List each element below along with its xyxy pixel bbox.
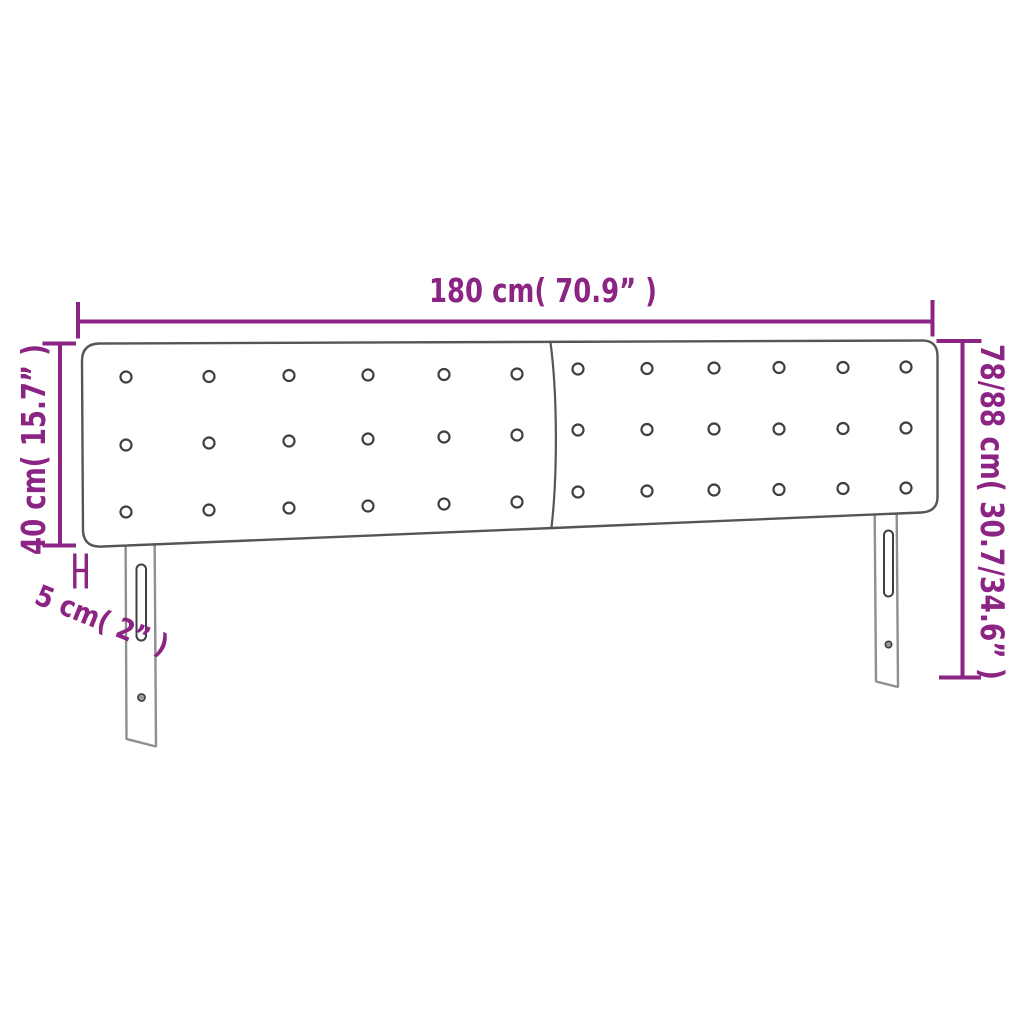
tufting-button <box>901 362 912 373</box>
left-leg-screw-hole <box>138 694 145 701</box>
tufting-button <box>642 363 653 374</box>
tufting-button <box>512 369 523 380</box>
tufting-button <box>709 485 720 496</box>
tufting-button <box>642 486 653 497</box>
tufting-button <box>439 499 450 510</box>
tufting-button <box>204 438 215 449</box>
tufting-button <box>838 483 849 494</box>
tufting-button <box>121 440 132 451</box>
tufting-button <box>204 371 215 382</box>
tufting-button <box>573 425 584 436</box>
tufting-button <box>121 372 132 383</box>
tufting-button <box>512 430 523 441</box>
dimension-diagram: 180 cm( 70.9” ) 40 cm( 15.7” ) 78/88 cm(… <box>0 0 1024 1024</box>
panel-height-dimension-label: 40 cm( 15.7” ) <box>14 344 53 555</box>
tufting-button <box>901 483 912 494</box>
tufting-button <box>512 497 523 508</box>
panel-height-dimension: 40 cm( 15.7” ) <box>14 344 76 556</box>
leg-details <box>137 531 894 702</box>
tufting-button <box>284 436 295 447</box>
tufting-button <box>363 434 374 445</box>
tufting-button <box>838 423 849 434</box>
tufting-button <box>284 503 295 514</box>
tufting-button <box>284 370 295 381</box>
right-leg-screw-hole <box>885 641 891 647</box>
total-height-dimension-label: 78/88 cm( 30.7/34.6” ) <box>973 344 1011 680</box>
tufting-button <box>439 369 450 380</box>
tufting-button <box>774 484 785 495</box>
width-dimension: 180 cm( 70.9” ) <box>78 271 933 339</box>
tufting-button <box>363 501 374 512</box>
tufting-button <box>838 362 849 373</box>
tufting-button <box>642 424 653 435</box>
tufting-button <box>709 424 720 435</box>
tufting-button <box>901 423 912 434</box>
headboard-diagram-canvas: 180 cm( 70.9” ) 40 cm( 15.7” ) 78/88 cm(… <box>0 0 1024 1024</box>
width-dimension-label: 180 cm( 70.9” ) <box>429 271 657 310</box>
total-height-dimension: 78/88 cm( 30.7/34.6” ) <box>937 341 1012 680</box>
tufting-button <box>573 364 584 375</box>
tufting-button <box>121 507 132 518</box>
tufting-button <box>774 424 785 435</box>
tufting-button <box>439 432 450 443</box>
tufting-button <box>363 370 374 381</box>
tufting-button <box>204 505 215 516</box>
right-leg-slot <box>884 531 893 597</box>
tufting-button <box>709 363 720 374</box>
tufting-button <box>774 362 785 373</box>
tufting-button <box>573 487 584 498</box>
